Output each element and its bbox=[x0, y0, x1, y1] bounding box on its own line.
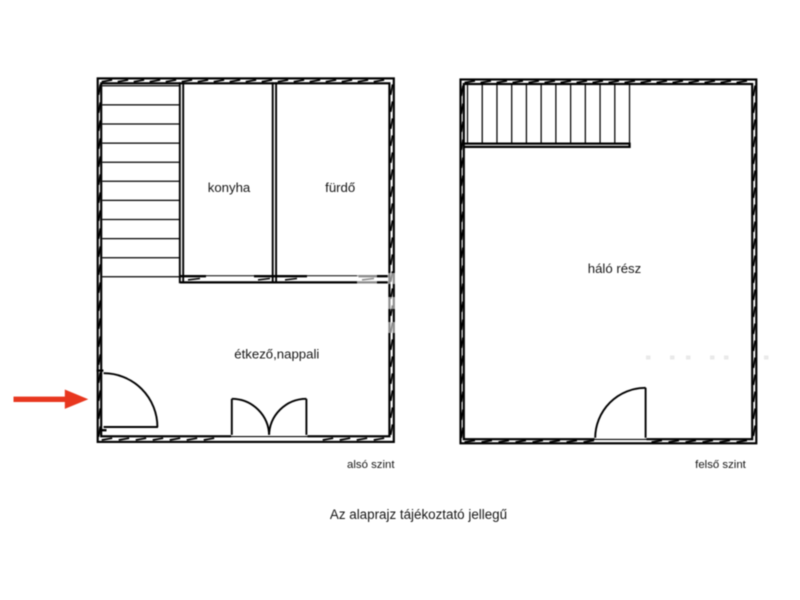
svg-text:konyha: konyha bbox=[208, 180, 251, 195]
svg-text:alsó szint: alsó szint bbox=[347, 459, 395, 471]
svg-text:háló rész: háló rész bbox=[588, 261, 642, 276]
svg-text:étkező,nappali: étkező,nappali bbox=[234, 347, 319, 362]
svg-text:felső szint: felső szint bbox=[695, 459, 746, 471]
svg-text:fürdő: fürdő bbox=[325, 180, 355, 195]
svg-text:Az alaprajz tájékoztató jelleg: Az alaprajz tájékoztató jellegű bbox=[330, 507, 507, 522]
